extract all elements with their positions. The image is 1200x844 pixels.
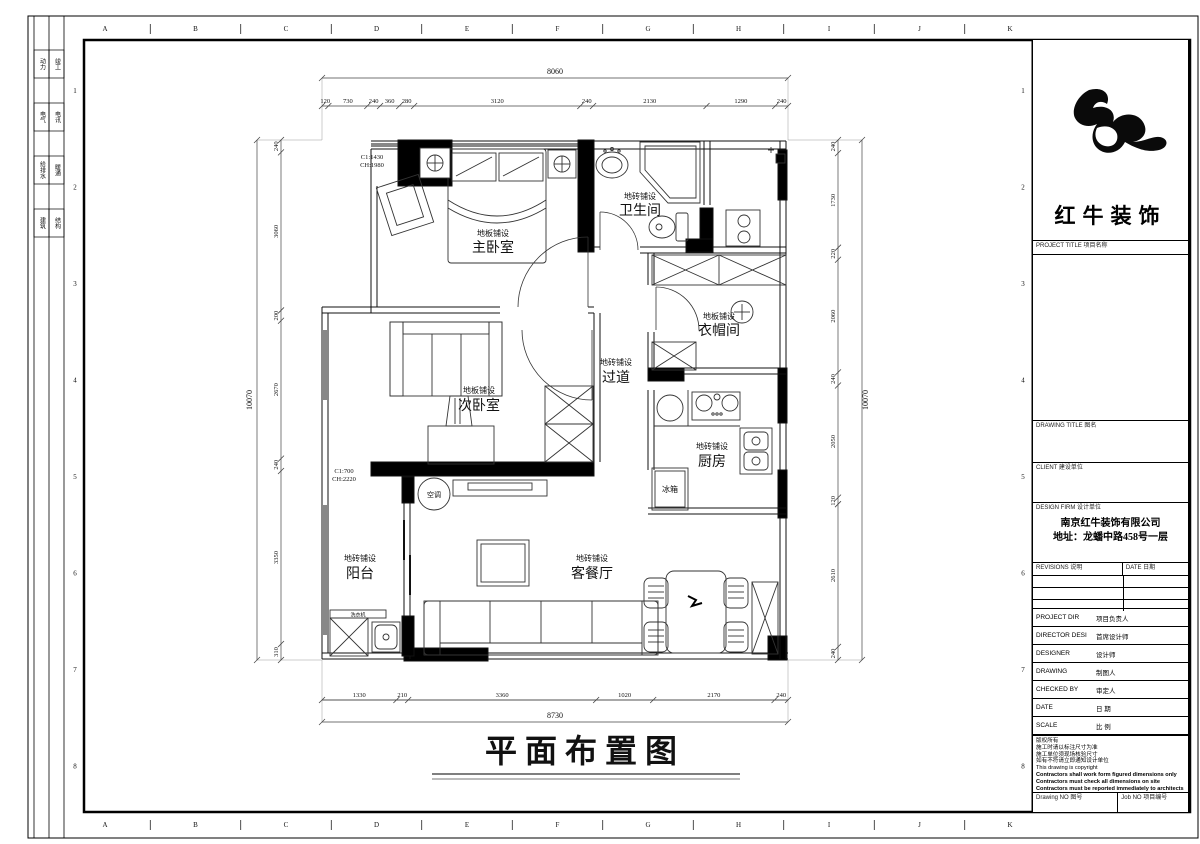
furniture <box>330 142 786 656</box>
desk <box>428 426 494 464</box>
dim-value: 240 <box>273 141 280 151</box>
discipline-label: 暖通 <box>54 163 61 177</box>
room-label-kitchen: 厨房 <box>698 454 726 470</box>
window-tag: CH:2220 <box>332 476 356 483</box>
grid-number: 6 <box>1021 570 1025 578</box>
sheet-title: 平面布置图 <box>432 733 740 779</box>
washbasin <box>596 152 628 178</box>
copyright-block: 版权所有施工时请以标注尺寸为准施工单位须现场核验尺寸如有不符请立即通知设计单位T… <box>1033 734 1188 792</box>
copyright-line: This drawing is copyright <box>1036 765 1185 772</box>
finish-label: 地板铺设 <box>477 228 509 238</box>
plan-title: 平面布置图 <box>485 733 685 769</box>
grid-numbers-left: 12345678 <box>73 87 77 771</box>
design-firm-label: DESIGN FIRM 设计单位 <box>1033 503 1188 513</box>
dim-chain-top: 120730240360280312024021301290240 <box>319 98 791 109</box>
copyright-line: Contractors must check all dimensions on… <box>1036 779 1185 786</box>
room-label-corridor: 过道 <box>602 370 630 386</box>
dim-value: 240 <box>830 374 837 384</box>
discipline-label: 结构 <box>54 216 61 230</box>
dim-value: 3120 <box>491 98 504 105</box>
dim-value: 210 <box>397 692 407 699</box>
dining-chair <box>644 578 668 608</box>
room-label-master: 主卧室 <box>472 239 514 256</box>
room-label-living: 客餐厅 <box>571 565 613 582</box>
dim-value: 360 <box>385 98 395 105</box>
copyright-line: 施工时请以标注尺寸为准 <box>1036 745 1185 752</box>
grid-number: 4 <box>1021 377 1025 385</box>
dim-value: 1330 <box>353 692 366 699</box>
grid-number: 4 <box>73 377 77 385</box>
grid-letter: G <box>645 821 650 829</box>
dim-value: 1020 <box>618 692 631 699</box>
grid-letter: H <box>736 821 741 829</box>
grid-letter: D <box>374 821 379 829</box>
room-labels: 地板铺设 主卧室 地砖铺设 卫生间 地板铺设 衣帽间 地砖铺设 过道 地板铺设 … <box>332 154 740 619</box>
finish-label: 地板铺设 <box>703 311 735 321</box>
grid-number: 8 <box>1021 763 1025 771</box>
grid-letters-bottom: ABCDEFGHIJK <box>102 820 1012 830</box>
drawing-no-label: Drawing NO 图号 <box>1033 793 1118 812</box>
grid-number: 1 <box>1021 87 1025 95</box>
drawing-title-row: DRAWING TITLE 图名 <box>1033 421 1188 431</box>
drawing-by-row: DRAWING制图人 <box>1033 662 1188 680</box>
dim-value: 240 <box>830 142 837 152</box>
grid-number: 2 <box>73 184 77 192</box>
project-title-row: PROJECT TITLE 项目名称 <box>1033 240 1188 254</box>
dim-chain-bottom: 1330210336010202170240 <box>319 692 791 703</box>
drawing-number-row: Drawing NO 图号 Job NO 项目编号 <box>1033 792 1188 812</box>
grid-letter: C <box>284 821 289 829</box>
double-sink <box>740 428 772 474</box>
grid-letter: E <box>465 821 469 829</box>
dim-total-right: 10070 <box>861 390 870 410</box>
grid-letter: A <box>102 25 107 33</box>
dim-value: 1290 <box>734 98 747 105</box>
project-dir-row: PROJECT DIR项目负责人 <box>1033 608 1188 626</box>
room-label-cloak: 衣帽间 <box>698 323 740 339</box>
copyright-line: 版权所有 <box>1036 738 1185 745</box>
dim-value: 1730 <box>830 194 837 207</box>
dim-total-top: 8060 <box>547 67 563 76</box>
dim-value: 240 <box>777 98 787 105</box>
project-title-space <box>1033 254 1188 420</box>
brand-name: 红牛装饰 <box>1055 200 1167 230</box>
grid-number: 7 <box>73 666 77 674</box>
dim-value: 2670 <box>273 383 280 396</box>
grid-number: 1 <box>73 87 77 95</box>
grid-letter: J <box>918 25 921 33</box>
design-firm-row: DESIGN FIRM 设计单位 南京红牛装饰有限公司 地址：龙蟠中路458号一… <box>1033 502 1188 562</box>
drawing-sheet: { "frame": { "grid_letters": ["A","B","C… <box>0 0 1200 844</box>
discipline-label: 电气 <box>39 110 46 123</box>
firm-address: 地址：龙蟠中路458号一层 <box>1033 531 1188 545</box>
grid-letter: D <box>374 25 379 33</box>
discipline-label: 动力 <box>39 58 46 71</box>
dining-chair <box>644 622 668 652</box>
sheet-frame <box>28 16 1198 838</box>
grid-letters-top: ABCDEFGHIJK <box>102 24 1012 34</box>
dim-value: 120 <box>830 496 837 506</box>
room-label-bath: 卫生间 <box>619 203 661 219</box>
logo-cell: 红牛装饰 <box>1033 40 1188 240</box>
discipline-label: 电讯 <box>54 110 61 124</box>
checked-by-row: CHECKED BY审定人 <box>1033 680 1188 698</box>
grid-letter: F <box>556 25 560 33</box>
designer-row: DESIGNER设计师 <box>1033 644 1188 662</box>
copyright-line: 如有不符请立即通知设计单位 <box>1036 758 1185 765</box>
grid-number: 5 <box>1021 473 1025 481</box>
finish-label: 地砖铺设 <box>576 553 608 563</box>
loveseat <box>390 322 502 396</box>
grid-letter: B <box>193 25 198 33</box>
room-label-bedroom2: 次卧室 <box>458 397 500 414</box>
kitchen-sink-round <box>657 395 683 421</box>
grid-number: 3 <box>1021 280 1025 288</box>
dim-value: 2130 <box>643 98 656 105</box>
dim-chain-right: 2401730220206024020501202610240 <box>830 137 841 663</box>
room-label-balcony: 阳台 <box>346 566 374 582</box>
dim-total-left: 10070 <box>245 390 254 410</box>
dim-chain-left: 240306020026702403350310 <box>273 137 284 663</box>
finish-label: 地板铺设 <box>463 385 495 395</box>
dim-value: 240 <box>273 460 280 470</box>
finish-label: 地砖铺设 <box>696 441 728 451</box>
ac-label: 空调 <box>427 490 441 499</box>
grid-letter: I <box>828 25 831 33</box>
discipline-label: 竣工 <box>54 57 61 70</box>
dim-value: 3360 <box>496 692 509 699</box>
scale-row: SCALE比 例 <box>1033 716 1188 734</box>
dim-value: 240 <box>776 692 786 699</box>
fridge-label: 冰箱 <box>662 484 678 494</box>
dim-value: 2060 <box>830 310 837 323</box>
grid-letter: A <box>102 821 107 829</box>
floor-plan-canvas: ABCDEFGHIJK ABCDEFGHIJK 12345678 1234567… <box>0 0 1200 844</box>
revisions-header: REVISIONS 说明 <box>1033 563 1123 575</box>
grid-letter: F <box>556 821 560 829</box>
grid-letter: G <box>645 25 650 33</box>
dim-value: 200 <box>273 311 280 321</box>
grid-letter: C <box>284 25 289 33</box>
date-row: DATE日 期 <box>1033 698 1188 716</box>
plan-walls <box>322 140 788 661</box>
firm-name: 南京红牛装饰有限公司 <box>1033 517 1188 531</box>
redniu-logo-icon <box>1051 84 1171 194</box>
discipline-label: 建筑 <box>39 216 46 230</box>
dim-value: 240 <box>369 98 379 105</box>
rev-date-header: DATE 日期 <box>1123 563 1188 575</box>
finish-label: 地砖铺设 <box>624 191 656 201</box>
dim-value: 2050 <box>830 435 837 448</box>
dim-value: 2170 <box>707 692 720 699</box>
tv-console <box>453 480 547 496</box>
revision-row <box>1033 576 1188 588</box>
dim-value: 2610 <box>830 569 837 582</box>
dining-chair <box>724 578 748 608</box>
window-tag: CH:1980 <box>360 162 384 169</box>
revision-row <box>1033 588 1188 600</box>
tv <box>468 483 532 490</box>
coffee-table <box>477 540 529 586</box>
window-tag: C1:1430 <box>361 154 383 161</box>
dim-value: 280 <box>402 98 412 105</box>
dim-value: 120 <box>320 98 330 105</box>
dim-total-bottom: 8730 <box>547 711 563 720</box>
discipline-label: 给排水 <box>39 160 46 179</box>
water-heater <box>776 154 785 163</box>
grid-numbers-right: 12345678 <box>1021 87 1025 771</box>
grid-letter: B <box>193 821 198 829</box>
dim-value: 3350 <box>273 551 280 564</box>
grid-number: 5 <box>73 473 77 481</box>
dim-value: 310 <box>273 647 280 657</box>
grid-letter: K <box>1007 25 1012 33</box>
title-block: 红牛装饰 PROJECT TITLE 项目名称 DRAWING TITLE 图名… <box>1032 40 1190 812</box>
washer-label: 洗衣机 <box>350 612 365 619</box>
job-no-label: Job NO 项目编号 <box>1118 793 1188 812</box>
dim-value: 240 <box>830 649 837 659</box>
dining-chair <box>724 622 748 652</box>
copyright-line: Contractors shall work form figured dime… <box>1036 772 1185 779</box>
client-row: CLIENT 建设单位 <box>1033 463 1188 473</box>
window-tag: C1:700 <box>334 468 353 475</box>
grid-letter: J <box>918 821 921 829</box>
grid-number: 7 <box>1021 666 1025 674</box>
dim-value: 3060 <box>273 225 280 238</box>
grid-letter: H <box>736 25 741 33</box>
grid-letter: E <box>465 25 469 33</box>
revisions-table: REVISIONS 说明 DATE 日期 <box>1033 562 1188 608</box>
grid-number: 2 <box>1021 184 1025 192</box>
grid-number: 8 <box>73 763 77 771</box>
grid-number: 6 <box>73 570 77 578</box>
grid-letter: I <box>828 821 831 829</box>
dim-value: 240 <box>582 98 592 105</box>
grid-letter: K <box>1007 821 1012 829</box>
finish-label: 地砖铺设 <box>344 553 376 563</box>
dining-table <box>666 571 726 653</box>
director-row: DIRECTOR DESI首席设计师 <box>1033 626 1188 644</box>
finish-label: 地砖铺设 <box>600 357 632 367</box>
dim-value: 730 <box>343 98 353 105</box>
dim-value: 220 <box>830 249 837 259</box>
grid-number: 3 <box>73 280 77 288</box>
